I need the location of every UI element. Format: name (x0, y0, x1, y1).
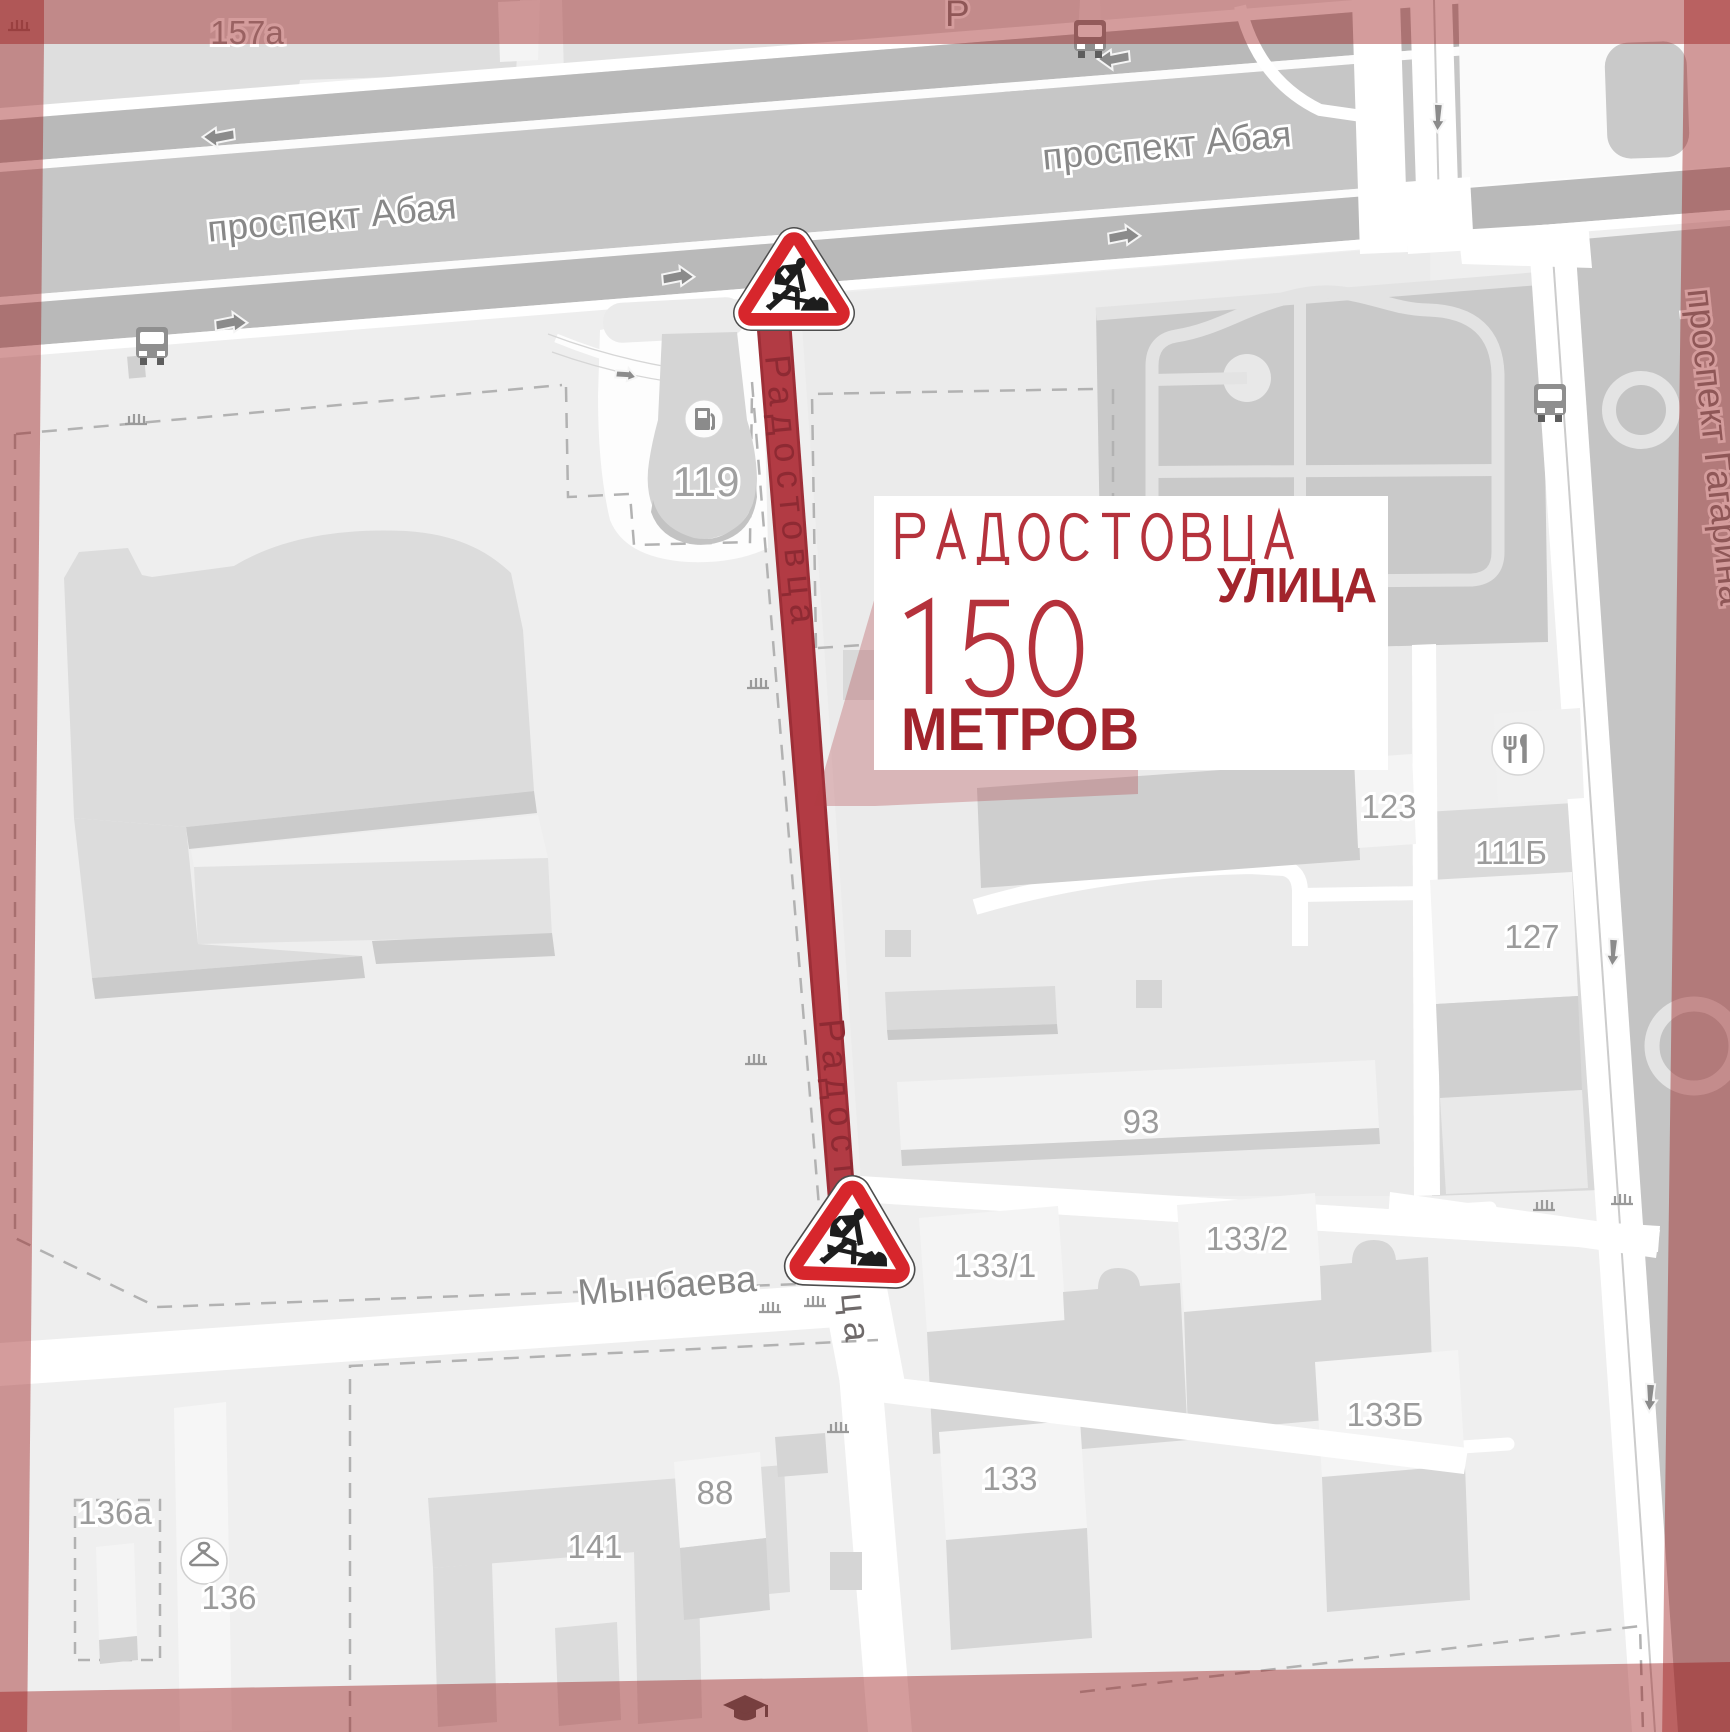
svg-text:133/1: 133/1 (954, 1247, 1037, 1284)
svg-text:119: 119 (673, 458, 740, 505)
svg-text:ца: ца (833, 1291, 879, 1351)
svg-text:136а: 136а (78, 1494, 152, 1531)
svg-text:133/2: 133/2 (1206, 1220, 1289, 1257)
svg-text:141: 141 (567, 1528, 622, 1565)
svg-text:123: 123 (1361, 788, 1416, 825)
svg-text:111Б: 111Б (1475, 834, 1547, 871)
svg-text:133: 133 (982, 1460, 1037, 1497)
svg-text:133Б: 133Б (1347, 1396, 1424, 1433)
svg-text:93: 93 (1123, 1103, 1160, 1140)
svg-text:127: 127 (1504, 918, 1559, 955)
svg-text:МЕТРОВ: МЕТРОВ (901, 696, 1139, 763)
svg-text:УЛИЦА: УЛИЦА (1217, 559, 1377, 613)
svg-text:88: 88 (697, 1474, 734, 1511)
svg-text:136: 136 (201, 1579, 256, 1616)
